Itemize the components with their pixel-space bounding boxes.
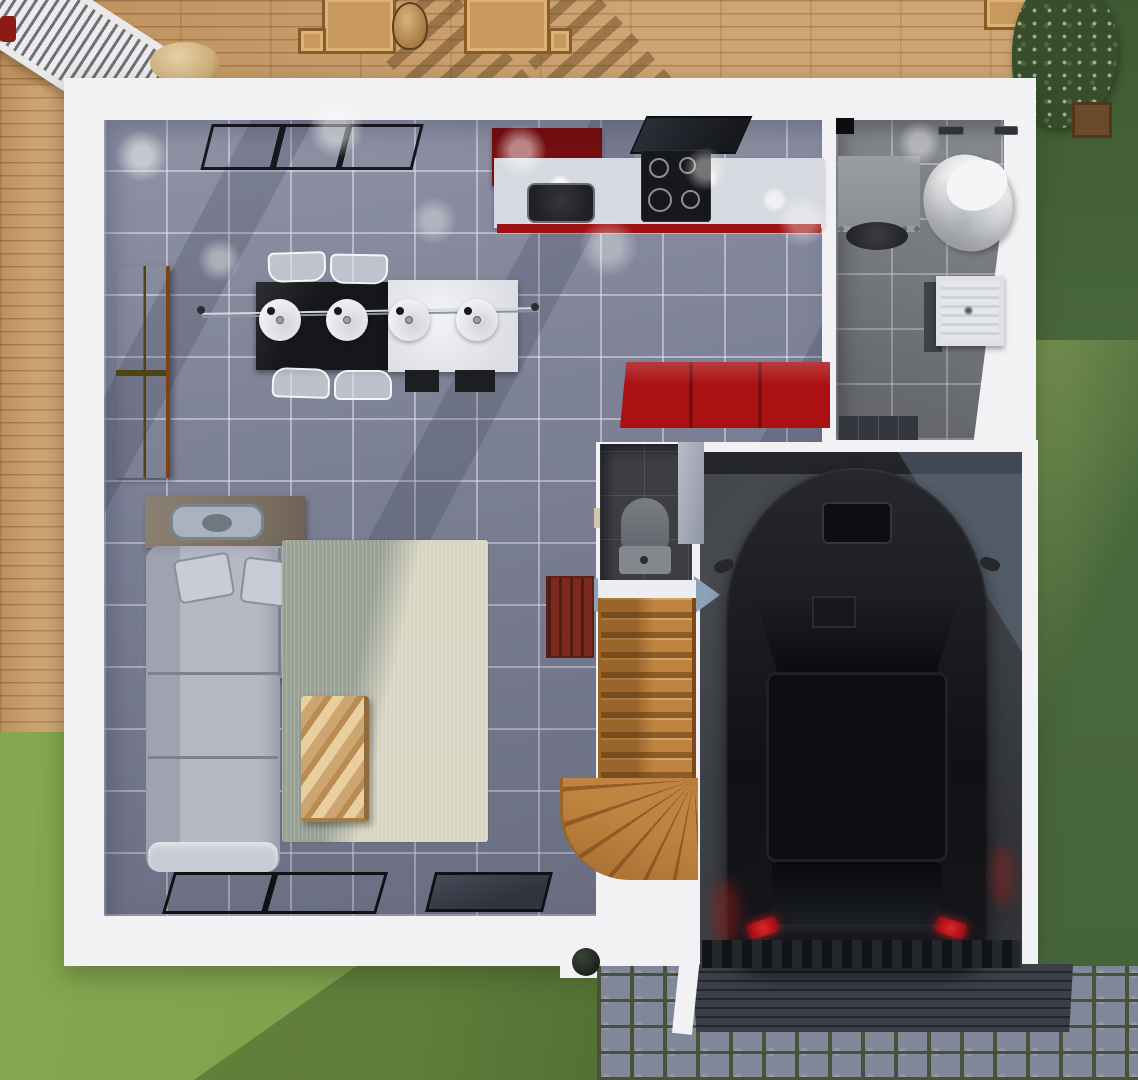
lamp-cap [267,307,275,315]
wood-chair [464,0,550,54]
sofa-cushion-seam [148,672,278,675]
kitchen-sink [527,183,595,223]
red-deck-item [0,16,16,42]
black-car [726,468,988,968]
stair-landing [598,580,696,598]
washing-machine-door [846,222,908,250]
pendant-lamp [326,299,368,341]
wall-vent [994,126,1018,135]
dark-red-cabinet [546,576,594,658]
kitchen-base-cabinet-edge [497,224,821,233]
garage-wall-end [678,442,704,544]
stair-opening-shadow-right [694,576,720,614]
wc-door-handle [594,508,600,528]
wood-coffee-table [301,696,369,822]
car-roof [766,672,948,862]
shower-drain [964,306,973,315]
dark-chair [455,370,495,392]
pendant-lamp [388,299,430,341]
acrylic-chair [330,253,389,284]
acrylic-chair [334,370,392,400]
lamp-cap [334,307,342,315]
lamp-stem [343,316,351,324]
car-rear-window [772,862,942,924]
taillight-reflection [992,846,1014,906]
living-room-window [200,124,423,170]
lamp-cap [396,307,404,315]
taillight-reflection [712,880,740,946]
acrylic-chair [267,251,326,283]
lamp-stem [276,316,284,324]
wire-anchor [531,303,539,311]
dark-chair [405,370,439,392]
wire-anchor [197,306,205,314]
pendant-lamp [259,299,301,341]
washing-machine [838,156,920,232]
lamp-cap [464,307,472,315]
floor-window [162,872,388,914]
burner [681,190,700,209]
sofa-cushion-seam [148,756,278,759]
sofa-armrest [148,842,278,872]
tray-bowl [202,514,232,532]
car-hood-vent [822,502,892,544]
burner [679,157,696,174]
olive-shelving-unit [116,266,170,478]
bathroom-door-mark [836,118,854,134]
extractor-hood [630,116,753,154]
lamp-stem [405,316,413,324]
pendant-lamp [456,299,498,341]
car-windshield [752,586,962,672]
acrylic-chair [271,367,330,399]
lamp-stem [473,316,481,324]
wood-deck-left [0,84,66,732]
wood-chair-arm [548,28,572,54]
burner [649,158,669,178]
garden-sphere [572,948,600,976]
floorplan-render [0,0,1138,1080]
toilet [621,498,669,550]
floor-window [425,872,553,912]
tiled-niche [838,416,918,440]
shrub-planter-box [1072,102,1112,138]
red-sideboard [620,362,830,428]
induction-cooktop [641,150,711,222]
toilet-flush-button [640,556,648,564]
car-roof-sensor [812,596,856,628]
wood-barrel-planter [392,2,428,50]
stair-straight-flight [598,598,696,778]
wood-chair [322,0,396,54]
burner [648,188,672,212]
wall-vent [938,126,964,135]
garage-door-grill [702,940,1020,968]
brick-ramp [691,964,1073,1032]
wood-chair-arm [298,28,326,54]
